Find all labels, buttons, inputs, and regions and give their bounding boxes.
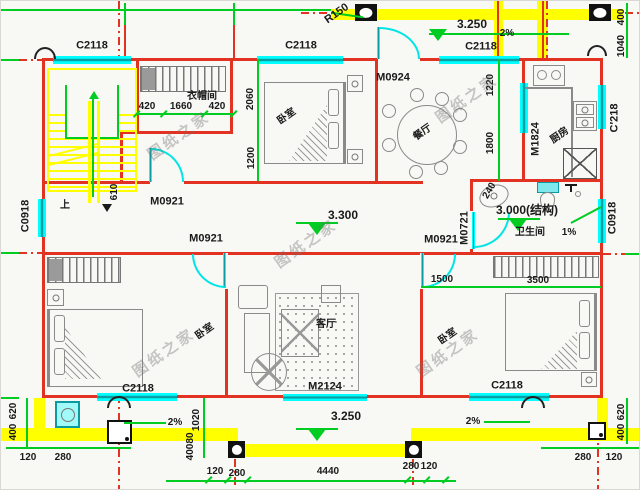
window-label-c2118: C2118 <box>122 384 154 395</box>
stair-arrow-down <box>102 204 112 212</box>
stair-arrow-up <box>89 91 99 99</box>
dim-120: 120 <box>606 453 623 463</box>
slope-2pct: 2% <box>466 417 480 427</box>
dim-1500: 1500 <box>431 275 453 285</box>
window-label-c2118: C2118 <box>491 381 523 392</box>
floor-drain <box>570 184 572 192</box>
room-label-bathroom: 卫生间 <box>515 228 545 238</box>
dim-line <box>203 398 205 458</box>
window-c2118 <box>53 56 131 64</box>
axis-stub <box>233 3 235 25</box>
wall-cloak-right <box>230 58 233 134</box>
window-c2118 <box>257 56 343 64</box>
counter-edge <box>525 87 573 89</box>
window-label-c0918: C0918 <box>21 200 32 232</box>
dim-120: 120 <box>207 467 224 477</box>
dim-line <box>257 59 259 181</box>
dim-420: 420 <box>139 102 156 112</box>
dim-line <box>166 480 456 482</box>
window-label-c0918: C0918 <box>608 202 619 234</box>
sink-bowl <box>576 117 594 128</box>
wall-middle <box>43 252 603 255</box>
slope-2pct: 2% <box>500 29 514 39</box>
window-c0918 <box>38 199 46 237</box>
dim-620: 620 <box>617 404 627 421</box>
dim-80: 80 <box>186 432 196 443</box>
pillow <box>579 332 590 359</box>
bedside-table <box>347 75 363 92</box>
pillow <box>54 348 65 375</box>
pillow <box>579 300 590 327</box>
dim-420: 420 <box>209 102 226 112</box>
armchair <box>238 285 268 309</box>
pillow <box>328 122 339 149</box>
dim-1660: 1660 <box>170 102 192 112</box>
top-dim-line <box>1 9 331 11</box>
dim-line <box>541 447 639 449</box>
dim-400: 400 <box>186 444 196 461</box>
stair-direction-line <box>92 97 94 197</box>
axis-column-left-top <box>118 1 120 58</box>
window-c2118 <box>439 56 519 64</box>
terrace-wall-line <box>497 1 499 58</box>
door-label-m0721: M0721 <box>460 211 471 245</box>
arc-marker <box>587 45 607 56</box>
wardrobe-end <box>49 259 62 281</box>
burner <box>537 70 547 80</box>
window-label-c2118: C2118 <box>465 42 497 53</box>
slope-1pct: 1% <box>562 228 576 238</box>
axis-stub <box>124 3 126 25</box>
column <box>588 422 606 440</box>
axis-ext <box>19 252 43 254</box>
pillow <box>328 89 339 116</box>
washing-machine <box>55 401 80 428</box>
slope-line <box>124 422 166 424</box>
dim-1800: 1800 <box>486 132 496 154</box>
level-3250-balcony: 3.250 <box>331 410 361 422</box>
dining-chair <box>382 138 396 152</box>
dim-3500: 3500 <box>527 276 549 286</box>
dining-chair <box>409 165 423 179</box>
floor-drain-dot <box>575 191 581 197</box>
dim-120: 120 <box>421 462 438 472</box>
dim-620: 620 <box>9 403 19 420</box>
balcony-edge <box>34 398 45 430</box>
coffee-table <box>281 309 319 357</box>
door-label-m0921: M0921 <box>150 197 184 208</box>
column <box>405 441 422 458</box>
level-3000: 3.000(结构) <box>496 204 558 216</box>
level-3250-top: 3.250 <box>457 18 487 30</box>
slope-line <box>571 206 602 224</box>
axis-ext <box>19 59 43 61</box>
door-label-m1824: M1824 <box>531 122 542 156</box>
axis-stub <box>233 25 235 58</box>
door-m1824 <box>520 83 528 133</box>
door-label-m0924: M0924 <box>376 73 410 84</box>
burner <box>551 70 561 80</box>
door-m2124 <box>283 394 367 401</box>
arc-marker <box>34 47 56 59</box>
door-label-m2124: M2124 <box>308 382 342 393</box>
stair-up-label: 上 <box>60 201 70 211</box>
column <box>589 4 611 21</box>
dim-line <box>136 113 234 115</box>
dim-2060: 2060 <box>246 88 256 110</box>
watermark: 图纸之家 <box>145 109 213 163</box>
wardrobe-end <box>142 68 155 90</box>
bedside-table <box>581 372 597 387</box>
window-label-c218: C′218 <box>610 104 621 133</box>
dim-280: 280 <box>403 462 420 472</box>
sink-bowl <box>576 104 594 115</box>
door-label-m0921: M0921 <box>189 234 223 245</box>
dim-400: 400 <box>9 424 19 441</box>
terrace-wall-line <box>542 1 544 58</box>
dining-chair <box>410 88 424 102</box>
bedside-table <box>47 289 64 306</box>
dim-400: 400 <box>617 9 627 26</box>
dining-chair <box>453 140 467 154</box>
pillow <box>54 315 65 342</box>
balcony-slab-mid <box>233 444 416 457</box>
level-marker <box>429 29 447 41</box>
plant <box>251 353 287 391</box>
axis-ext <box>1 252 19 254</box>
watermark: 图纸之家 <box>272 217 340 271</box>
dim-1200: 1200 <box>247 147 257 169</box>
dim-280: 280 <box>55 453 72 463</box>
dim-1020: 1020 <box>192 409 202 431</box>
dim-line <box>498 59 500 181</box>
dim-4440: 4440 <box>317 467 339 477</box>
dim-280: 280 <box>229 469 246 479</box>
bedside-table <box>347 149 363 164</box>
dim-280: 280 <box>575 453 592 463</box>
column <box>228 441 245 458</box>
window-c218 <box>598 85 606 129</box>
room-label-kitchen: 厨房 <box>549 126 571 146</box>
level-marker <box>308 429 326 441</box>
dim-400: 400 <box>617 424 627 441</box>
axis-ext <box>625 253 640 255</box>
axis-stub <box>124 25 126 58</box>
slope-line <box>484 421 530 423</box>
dining-chair <box>434 161 448 175</box>
slope-2pct: 2% <box>168 418 182 428</box>
side-table <box>321 285 341 303</box>
window-label-c2118: C2118 <box>76 41 108 52</box>
window-label-c2118: C2118 <box>285 41 317 52</box>
floor-plan-drawing: C2118 C2118 C2118 C2118 C2118 C0918 C091… <box>0 0 640 490</box>
flue-shaft <box>563 148 597 179</box>
door-arc-m0924 <box>379 27 420 59</box>
door-label-m0921: M0921 <box>424 235 458 246</box>
axis-ext <box>1 59 19 61</box>
room-label-living: 客厅 <box>316 320 336 330</box>
dim-line <box>421 286 601 288</box>
dim-line <box>26 398 28 448</box>
dim-line <box>6 447 131 449</box>
axis-ext <box>603 253 625 255</box>
dim-120: 120 <box>20 453 37 463</box>
dim-1040: 1040 <box>617 35 627 57</box>
column <box>355 4 377 21</box>
dim-610: 610 <box>110 184 120 201</box>
door-arc-m0921 <box>192 254 226 288</box>
dining-chair <box>382 104 396 118</box>
axis-ext <box>1 397 19 399</box>
axis-right-top <box>546 1 548 58</box>
